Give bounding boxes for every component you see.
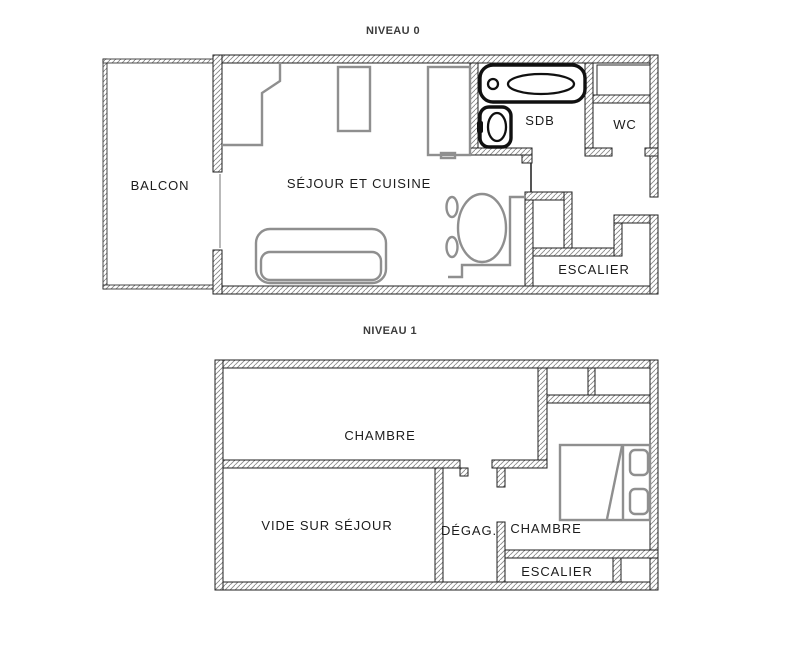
wc-duct-box [597,65,650,95]
cabinet-icon [338,67,370,131]
wall-segment [613,558,621,582]
wall-segment [593,95,650,103]
wall-segment [564,192,572,256]
wall-segment [213,55,222,172]
wall-segment [215,360,658,368]
level0-furniture [222,63,525,283]
balcony-wall [103,59,213,63]
floor-plan-page: NIVEAU 0 [0,0,800,661]
room-label-escalier-1: ESCALIER [521,564,593,579]
wall-segment [538,368,547,460]
wall-segment [470,63,478,148]
level0-fixtures [477,65,585,147]
wall-segment [497,522,505,582]
room-label-wc: WC [613,117,636,132]
room-label-escalier-0: ESCALIER [558,262,630,277]
level0-title: NIVEAU 0 [366,25,420,37]
kitchen-counter-icon [222,63,280,145]
wall-segment [213,55,658,63]
room-label-chambre-2: CHAMBRE [510,521,581,536]
chair-icon [447,197,458,217]
floor-plan-canvas: NIVEAU 0 [0,0,800,661]
sofa-seat-icon [261,252,381,280]
wall-segment [525,192,533,286]
room-label-vide-sur-sejour: VIDE SUR SÉJOUR [261,518,392,533]
wall-segment [533,248,622,256]
level1-title: NIVEAU 1 [363,325,417,337]
door-jamb [522,155,532,163]
wall-segment [223,460,460,468]
room-label-sdb: SDB [525,113,554,128]
room-label-chambre-1: CHAMBRE [344,428,415,443]
wall-segment [650,215,658,294]
dining-table-icon [458,194,506,262]
room-label-balcon: BALCON [131,178,190,193]
wall-segment [585,148,612,156]
wall-segment [215,582,658,590]
wall-segment [547,395,650,403]
wall-segment [645,148,658,156]
wall-segment [215,360,223,590]
chair-icon [447,237,458,257]
balcony-wall [103,285,213,289]
wall-segment [470,148,532,155]
bathtub-icon [480,65,585,102]
pillow-icon [630,489,648,514]
door-jamb [460,468,468,476]
pillow-icon [630,450,648,475]
room-label-sejour-cuisine: SÉJOUR ET CUISINE [287,176,431,191]
kitchen-unit-icon [428,67,470,155]
wall-segment [614,215,650,223]
balcony-wall [103,59,107,289]
sink-tap-icon [477,121,483,133]
wall-segment [492,460,547,468]
wall-segment [650,55,658,197]
wall-segment [213,286,658,294]
room-label-degagement: DÉGAG. [441,523,497,538]
door-jamb [497,468,505,487]
wall-segment [213,250,222,294]
wall-segment [505,550,658,558]
level1-furniture [560,445,650,520]
wall-segment [588,368,595,395]
